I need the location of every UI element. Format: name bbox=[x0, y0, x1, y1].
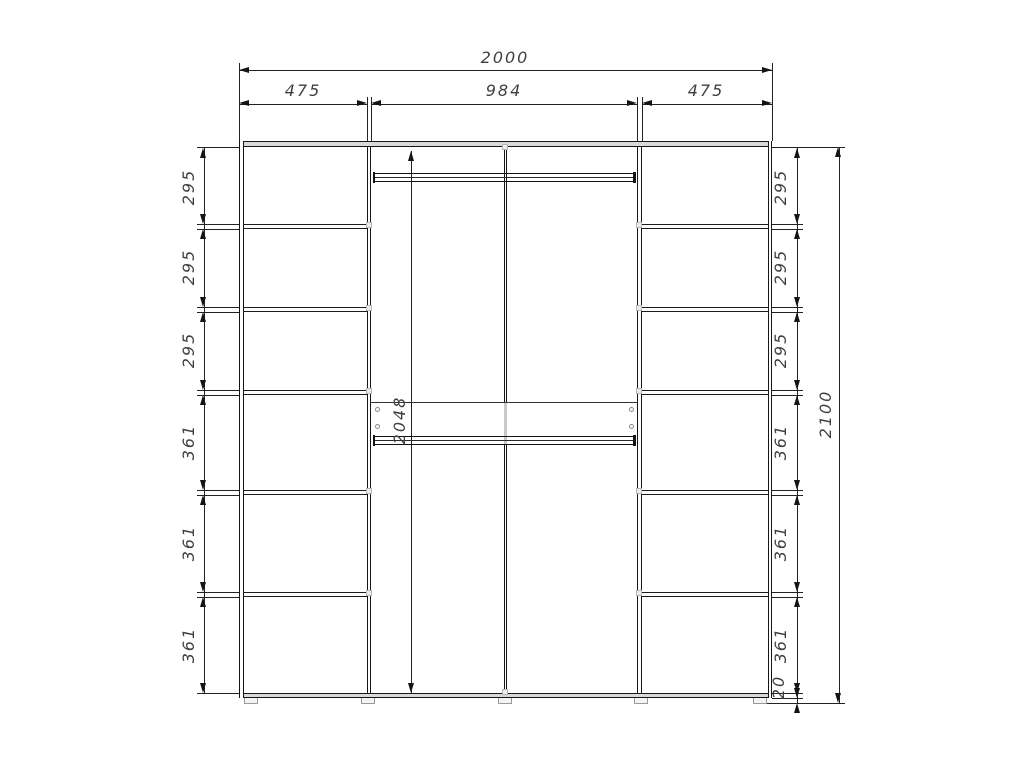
dim-arrow bbox=[200, 229, 206, 239]
left-shelf-3 bbox=[244, 390, 367, 395]
dim-label-interior-height: 2048 bbox=[392, 396, 408, 445]
dim-arrow bbox=[794, 495, 800, 505]
ext-line bbox=[197, 490, 240, 491]
dim-label-left-height-3: 295 bbox=[181, 332, 197, 369]
shelf-connector bbox=[366, 388, 372, 394]
dim-arrow bbox=[762, 100, 772, 106]
left-shelf-1 bbox=[244, 224, 367, 229]
left-shelf-5 bbox=[244, 592, 367, 597]
dim-line-overall-width bbox=[239, 70, 772, 71]
shelf-connector bbox=[636, 488, 642, 494]
shelf-connector bbox=[366, 590, 372, 596]
right-shelf-5 bbox=[642, 592, 768, 597]
dim-arrow bbox=[835, 693, 841, 703]
foot bbox=[361, 698, 375, 704]
dim-arrow bbox=[794, 229, 800, 239]
dim-line-section bbox=[642, 104, 772, 105]
dim-label-left-height-4: 361 bbox=[181, 424, 197, 461]
dim-arrow bbox=[794, 395, 800, 405]
ext-line bbox=[197, 224, 240, 225]
shelf-connector bbox=[502, 144, 508, 150]
dim-label-right-height-3: 295 bbox=[773, 332, 789, 369]
ext-line bbox=[772, 592, 804, 593]
dim-label-right-height-5: 361 bbox=[773, 525, 789, 562]
dim-arrow bbox=[408, 151, 414, 161]
shelf-connector bbox=[636, 590, 642, 596]
hanging-rail-middle bbox=[374, 440, 634, 441]
dim-arrow bbox=[200, 148, 206, 158]
dim-arrow bbox=[200, 297, 206, 307]
ext-line bbox=[197, 307, 240, 308]
ext-line bbox=[772, 224, 804, 225]
dim-arrow bbox=[794, 597, 800, 607]
dim-label-section-center: 984 bbox=[486, 83, 523, 99]
dim-arrow bbox=[239, 67, 249, 73]
dim-label-left-height-1: 295 bbox=[181, 169, 197, 206]
center-mid-line bbox=[371, 402, 637, 403]
ext-line bbox=[772, 390, 804, 391]
ext-line-floor bbox=[755, 703, 845, 704]
dim-arrow bbox=[642, 100, 652, 106]
shelf-connector bbox=[636, 222, 642, 228]
shelf-connector bbox=[366, 222, 372, 228]
ext-line bbox=[197, 390, 240, 391]
dim-arrow bbox=[794, 214, 800, 224]
dim-arrow bbox=[200, 597, 206, 607]
dim-label-section-right: 475 bbox=[688, 83, 725, 99]
dim-arrow bbox=[200, 582, 206, 592]
rail-bracket bbox=[373, 172, 376, 184]
dim-arrow bbox=[627, 100, 637, 106]
dim-arrow bbox=[200, 380, 206, 390]
dim-arrow bbox=[371, 100, 381, 106]
rail-bracket bbox=[633, 435, 636, 447]
ext-line bbox=[772, 307, 804, 308]
foot bbox=[498, 698, 512, 704]
dim-label-section-left: 475 bbox=[285, 83, 322, 99]
dim-label-overall-width: 2000 bbox=[481, 50, 530, 66]
dim-line-interior-height bbox=[411, 151, 412, 693]
dim-arrow bbox=[200, 214, 206, 224]
rail-bracket bbox=[633, 172, 636, 184]
ext-line bbox=[772, 490, 804, 491]
ext-line bbox=[367, 97, 368, 141]
shelf-connector bbox=[636, 305, 642, 311]
left-shelf-4 bbox=[244, 490, 367, 495]
ext-line bbox=[197, 592, 240, 593]
right-shelf-4 bbox=[642, 490, 768, 495]
dim-arrow bbox=[794, 148, 800, 158]
ext-line bbox=[197, 693, 240, 694]
right-shelf-3 bbox=[642, 390, 768, 395]
dim-arrow bbox=[794, 582, 800, 592]
dim-label-right-height-2: 295 bbox=[773, 249, 789, 286]
dim-arrow bbox=[200, 395, 206, 405]
dim-label-right-height-6: 361 bbox=[773, 627, 789, 664]
dim-arrow bbox=[200, 312, 206, 322]
dim-label-right-height-1: 295 bbox=[773, 169, 789, 206]
hanging-rail-top bbox=[374, 177, 634, 178]
ext-line bbox=[637, 97, 638, 141]
dim-label-left-height-2: 295 bbox=[181, 249, 197, 286]
dim-arrow bbox=[794, 703, 800, 713]
dim-line-section bbox=[371, 104, 637, 105]
right-shelf-1 bbox=[642, 224, 768, 229]
ext-line bbox=[772, 147, 846, 148]
right-side-panel bbox=[768, 141, 773, 698]
dim-label-right-height-4: 361 bbox=[773, 424, 789, 461]
center-divider-shadow bbox=[504, 402, 507, 444]
dim-arrow bbox=[794, 480, 800, 490]
shelf-connector bbox=[366, 488, 372, 494]
left-divider-panel bbox=[367, 147, 372, 693]
dim-arrow bbox=[200, 480, 206, 490]
dim-arrow bbox=[835, 147, 841, 157]
hanging-rail-middle bbox=[374, 436, 634, 437]
dim-line-section bbox=[239, 104, 367, 105]
dim-label-plinth-height: 20 bbox=[771, 675, 787, 699]
dim-arrow bbox=[357, 100, 367, 106]
hardware-hole bbox=[629, 407, 634, 412]
dim-arrow bbox=[794, 312, 800, 322]
hardware-hole bbox=[629, 424, 634, 429]
foot bbox=[753, 698, 767, 704]
dim-arrow bbox=[200, 495, 206, 505]
shelf-connector bbox=[636, 388, 642, 394]
dim-arrow bbox=[239, 100, 249, 106]
dim-arrow bbox=[408, 683, 414, 693]
hanging-rail-top bbox=[374, 181, 634, 182]
dim-label-left-height-6: 361 bbox=[181, 627, 197, 664]
right-divider-panel bbox=[637, 147, 642, 693]
hardware-hole bbox=[375, 424, 380, 429]
dim-line-overall-height bbox=[839, 147, 840, 704]
hardware-hole bbox=[375, 407, 380, 412]
shelf-connector bbox=[502, 689, 508, 695]
foot bbox=[244, 698, 258, 704]
dim-arrow bbox=[794, 297, 800, 307]
hanging-rail-middle bbox=[374, 444, 634, 445]
foot bbox=[634, 698, 648, 704]
rail-bracket bbox=[373, 435, 376, 447]
ext-line bbox=[772, 63, 773, 141]
left-shelf-2 bbox=[244, 307, 367, 312]
dim-arrow bbox=[794, 688, 800, 698]
hanging-rail-top bbox=[374, 173, 634, 174]
dim-arrow bbox=[794, 380, 800, 390]
shelf-connector bbox=[366, 305, 372, 311]
dim-arrow bbox=[762, 67, 772, 73]
dim-arrow bbox=[200, 683, 206, 693]
wardrobe-technical-drawing: 2000 475 984 475 295 295 295 361 361 361… bbox=[0, 0, 1024, 768]
dim-label-left-height-5: 361 bbox=[181, 525, 197, 562]
right-shelf-2 bbox=[642, 307, 768, 312]
dim-label-overall-height: 2100 bbox=[818, 390, 834, 439]
